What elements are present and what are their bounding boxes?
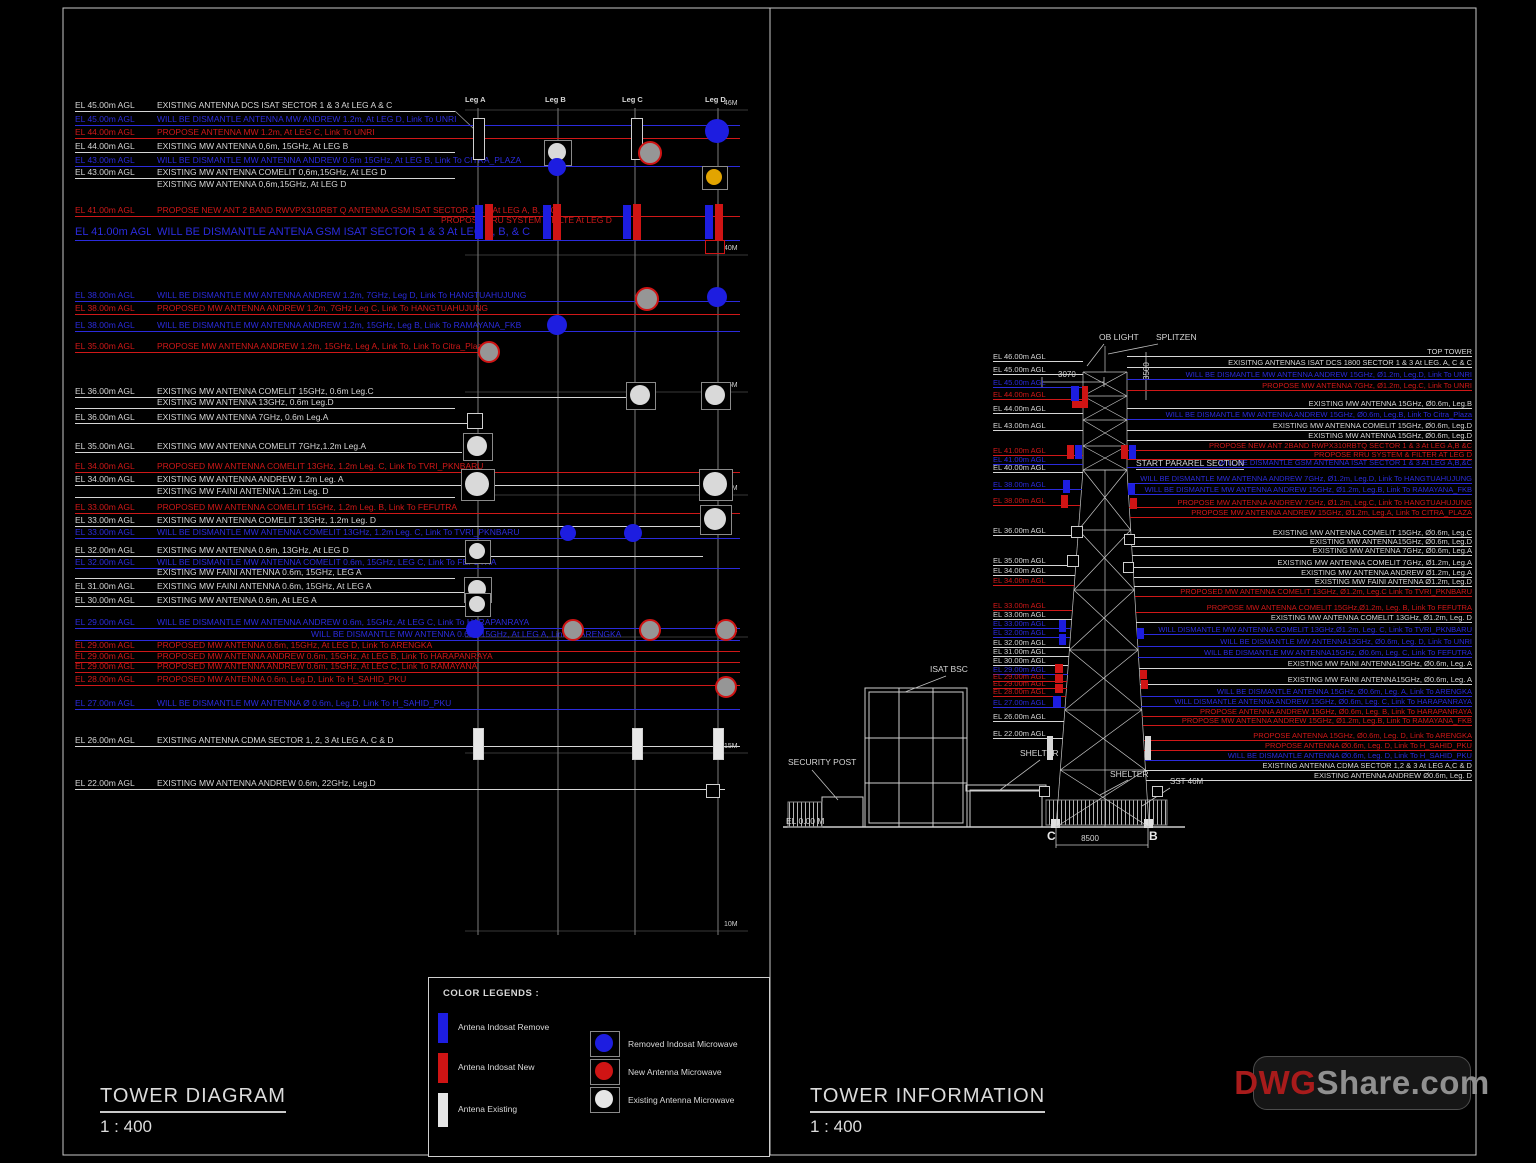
tower-elevation-label: EL 44.00m AGL <box>993 390 1083 400</box>
legend-swatch-new <box>438 1053 448 1083</box>
tower-info-annotation: WILL BE DISMANTLE ANTENNA Ø0.6m, Leg. D,… <box>1145 751 1472 761</box>
legend-label: Antena Indosat New <box>458 1062 535 1072</box>
legend-circle-new-mw <box>590 1059 620 1085</box>
tower-elevation-label: EL 40.00m AGL <box>993 463 1083 473</box>
security-post-label: SECURITY POST <box>788 757 856 767</box>
tower-elevation-label: EL 46.00m AGL <box>993 352 1083 362</box>
tower-antenna-symbol <box>1055 674 1063 683</box>
elevation-marker: 15M <box>724 743 738 750</box>
leg-header: Leg C <box>622 95 643 104</box>
tower-antenna-symbol <box>1055 664 1063 673</box>
diagram-annotation-row: EL 27.00m AGLWILL BE DISMANTLE MW ANTENN… <box>75 698 740 710</box>
existing-microwave-symbol <box>461 469 495 501</box>
tower-info-annotation: PROPOSE MW ANTENNA ANDREW 15GHz, Ø1.2m, … <box>1143 716 1472 726</box>
tower-info-annotation: EXISTING MW FAINI ANTENNA Ø1.2m, Leg.D <box>1134 577 1472 587</box>
splitzen-label: SPLITZEN <box>1156 332 1197 342</box>
tower-antenna-symbol <box>1130 498 1137 509</box>
leg-b-letter: B <box>1149 829 1158 843</box>
indosat-antenna-pair-symbol <box>622 204 642 240</box>
tower-antenna-symbol <box>1063 480 1070 493</box>
diagram-annotation-row: EL 29.00m AGLPROPOSED MW ANTENNA ANDREW … <box>75 661 740 673</box>
diagram-annotation-row: EL 43.00m AGLEXISTING MW ANTENNA COMELIT… <box>75 167 455 179</box>
legend-label: Antena Existing <box>458 1104 517 1114</box>
tower-info-annotation: EXISTING MW FAINI ANTENNA15GHz, Ø0.6m, L… <box>1140 675 1472 685</box>
right-panel-scale: 1 : 400 <box>810 1117 862 1137</box>
diagram-annotation-row: EL 22.00m AGLEXISTING MW ANTENNA ANDREW … <box>75 778 725 790</box>
tower-info-annotation: EXISTING MW ANTENNA COMELIT 7GHz, Ø1.2m,… <box>1133 558 1472 568</box>
new-microwave-symbol <box>562 619 584 641</box>
antenna-panel-symbol <box>467 413 483 429</box>
tower-antenna-symbol <box>1053 696 1061 707</box>
watermark-suffix: Share.com <box>1316 1064 1489 1102</box>
diagram-annotation-row: EL 35.00m AGLPROPOSE MW ANTENNA ANDREW 1… <box>75 341 478 353</box>
existing-microwave-symbol <box>465 540 491 564</box>
new-microwave-symbol <box>638 141 662 165</box>
diagram-annotation-row: EL 28.00m AGLPROPOSED MW ANTENNA 0.6m, L… <box>75 674 740 686</box>
sst-label: SST 46M <box>1170 777 1203 786</box>
diagram-annotation-row: EL 31.00m AGLEXISTING MW FAINI ANTENNA 0… <box>75 581 468 593</box>
tower-elevation-label: EL 44.00m AGL <box>993 404 1083 414</box>
legend-circle-removed-mw <box>590 1031 620 1057</box>
indosat-antenna-pair-symbol <box>704 204 724 240</box>
tower-info-annotation: PROPOSE MW ANTENNA ANDREW 7GHz, Ø1.2m, L… <box>1129 498 1472 508</box>
tower-antenna-symbol <box>1124 534 1135 545</box>
shelter-label: SHELTER <box>1020 748 1059 758</box>
diagram-annotation-row: EXISTING MW FAINI ANTENNA 0.6m, 15GHz, L… <box>75 567 455 579</box>
existing-microwave-symbol <box>700 505 732 535</box>
elevation-marker: 10M <box>724 921 738 928</box>
removed-microwave-symbol <box>624 524 642 542</box>
new-microwave-symbol <box>478 341 500 363</box>
tower-elevation-label: EL 35.00m AGL <box>993 556 1076 566</box>
cad-sheet: 3070 3500 8500 EL 45.00m AGLEXISTING ANT… <box>0 0 1536 1163</box>
left-panel-title: TOWER DIAGRAM <box>100 1085 286 1113</box>
diagram-annotation-row: EL 45.00m AGLEXISTING ANTENNA DCS ISAT S… <box>75 100 455 112</box>
diagram-annotation-row: EXISTING MW ANTENNA 0,6m,15GHz, At LEG D <box>75 179 455 190</box>
tower-info-annotation: EXISTING MW ANTENNA 7GHz, Ø0.6m, Leg.A <box>1132 546 1472 556</box>
diagram-annotation-row: EL 34.00m AGLEXISTING MW ANTENNA ANDREW … <box>75 474 700 486</box>
tower-info-annotation: EXISTING MW ANTENNA COMELIT 13GHz, Ø1.2m… <box>1136 613 1472 623</box>
legend-label: Removed Indosat Microwave <box>628 1039 738 1049</box>
new-microwave-symbol <box>715 619 737 641</box>
diagram-annotation-row: EL 36.00m AGLEXISTING MW ANTENNA 7GHz, 0… <box>75 412 468 424</box>
legend-swatch-remove <box>438 1013 448 1043</box>
legend-label: Existing Antenna Microwave <box>628 1095 734 1105</box>
tower-antenna-symbol <box>1145 736 1151 760</box>
antenna-panel-symbol <box>706 784 720 798</box>
legend-circle-existing-mw <box>590 1087 620 1113</box>
start-parapel-label: START PARAREL SECTION <box>1136 458 1244 470</box>
tower-antenna-symbol <box>1075 445 1082 459</box>
leader-lines <box>812 344 1170 806</box>
tower-info-annotation: PROPOSED MW ANTENNA COMELIT 13GHz, Ø1.2m… <box>1135 587 1472 597</box>
tower-info-annotation: EXISTING MW ANTENNA 15GHz, Ø0.6m, Leg.B <box>1127 399 1472 409</box>
indosat-antenna-pair-symbol <box>542 204 562 240</box>
elevation-marker: 40M <box>724 245 738 252</box>
tower-info-annotation: EXISTING MW FAINI ANTENNA15GHz, Ø0.6m, L… <box>1139 659 1472 669</box>
existing-microwave-symbol <box>626 382 656 410</box>
diagram-annotation-row: EXISTING MW ANTENNA 13GHz, 0.6m Leg.D <box>75 397 455 409</box>
tower-antenna-symbol <box>1061 495 1068 508</box>
tower-info-annotation: EXISITNG ANTENNAS ISAT DCS 1800 SECTOR 1… <box>1127 358 1472 368</box>
existing-microwave-symbol <box>701 382 731 410</box>
tower-info-annotation: WILL BE DISMANTLE ANTENNA 15GHz, Ø0.6m, … <box>1141 687 1472 697</box>
tower-info-annotation: WILL DISMANTLE ANTENNA ANDREW 15GHz, Ø0.… <box>1141 697 1472 707</box>
leg-c-letter: C <box>1047 829 1056 843</box>
tower-info-annotation: EXISTING MW ANTENNA COMELIT 15GHz, Ø0.6m… <box>1127 421 1472 431</box>
tower-antenna-symbol <box>1140 670 1147 679</box>
tower-elevation-label: EL 26.00m AGL <box>993 712 1064 722</box>
leg-header: Leg B <box>545 95 566 104</box>
legend-title: COLOR LEGENDS : <box>443 988 539 999</box>
removed-microwave-symbol <box>560 525 576 541</box>
diagram-annotation-row: EL 33.00m AGLPROPOSED MW ANTENNA COMELIT… <box>75 502 740 514</box>
tower-antenna-symbol <box>1137 628 1144 639</box>
tower-antenna-symbol <box>1059 620 1066 632</box>
tower-antenna-symbol <box>1071 526 1083 538</box>
color-legend: COLOR LEGENDS : Antena Indosat Remove An… <box>428 977 770 1157</box>
new-microwave-symbol <box>715 676 737 698</box>
elevation-marker: 46M <box>724 100 738 107</box>
existing-microwave-symbol <box>465 593 491 617</box>
indosat-antenna-pair-symbol <box>474 204 494 240</box>
existing-microwave-symbol <box>702 166 728 190</box>
tower-info-annotation: WILL DISMANTLE MW ANTENNA COMELIT 13GHz,… <box>1137 625 1472 635</box>
tower-antenna-symbol <box>1082 386 1088 401</box>
rru-frame-symbol <box>705 240 725 254</box>
antenna-panel-symbol <box>473 118 485 160</box>
tower-antenna-symbol <box>1129 445 1136 459</box>
tower-info-annotation: PROPOSE MW ANTENNA 7GHz, Ø1.2m, Leg.C, L… <box>1127 381 1472 391</box>
removed-microwave-symbol <box>707 287 727 307</box>
existing-microwave-symbol <box>699 469 733 501</box>
tower-elevation-label: EL 34.00m AGL <box>993 566 1075 576</box>
tower-info-annotation: PROPOSE ANTENNA 15GHz, Ø0.6m, Leg. D, Li… <box>1144 731 1472 741</box>
antenna-panel-symbol <box>713 728 724 760</box>
existing-microwave-symbol <box>463 433 493 461</box>
antenna-panel-symbol <box>632 728 643 760</box>
tower-elevation-label: EL 36.00m AGL <box>993 526 1078 536</box>
tower-elevation-label: EL 45.00m AGL <box>993 365 1083 375</box>
new-microwave-symbol <box>639 619 661 641</box>
tower-info-annotation: PROPOSE ANTENNA Ø0.6m, Leg. D, Link To H… <box>1144 741 1472 751</box>
diagram-annotation-row: EXISTING MW FAINI ANTENNA 1.2m Leg. D <box>75 486 455 498</box>
diagram-annotation-row: EL 38.00m AGLWILL BE DISMANTLE MW ANTENN… <box>75 320 740 332</box>
legend-label: Antena Indosat Remove <box>458 1022 549 1032</box>
tower-info-annotation: WILL BE DISMANTLE MW ANTENNA ANDREW 15GH… <box>1127 370 1472 380</box>
tower-info-annotation: TOP TOWER <box>1127 347 1472 357</box>
ground-elevation-label: EL 0.00 M <box>786 816 824 826</box>
tower-info-annotation: EXISTING ANTENNA CDMA SECTOR 1,2 & 3 At … <box>1145 761 1472 771</box>
left-panel-scale: 1 : 400 <box>100 1117 152 1137</box>
tower-info-annotation: PROPOSE MW ANTENNA ANDREW 15GHz, Ø1.2m, … <box>1130 508 1472 518</box>
tower-antenna-symbol <box>1123 562 1134 573</box>
diagram-annotation-row: EL 30.00m AGLEXISTING MW ANTENNA 0.6m, A… <box>75 595 468 607</box>
dwgshare-watermark: DWGShare.com <box>1253 1056 1471 1110</box>
antenna-panel-symbol <box>473 728 484 760</box>
legend-label: New Antenna Microwave <box>628 1067 722 1077</box>
shelter-label-2: SHELTER <box>1110 769 1149 779</box>
diagram-annotation-row: EL 44.00m AGLEXISTING MW ANTENNA 0,6m, 1… <box>75 141 455 153</box>
tower-antenna-symbol <box>1067 555 1079 567</box>
dim-base-width: 8500 <box>1081 834 1099 843</box>
tower-elevation-label: EL 34.00m AGL <box>993 576 1074 586</box>
diagram-annotation-row: EL 35.00m AGLEXISTING MW ANTENNA COMELIT… <box>75 441 462 453</box>
tower-antenna-symbol <box>1128 484 1135 495</box>
tower-info-annotation: PROPOSE MW ANTENNA COMELIT 15GHz,Ø1.2m, … <box>1136 603 1472 613</box>
right-panel-title: TOWER INFORMATION <box>810 1085 1045 1113</box>
tower-elevation-label: EL 43.00m AGL <box>993 421 1083 431</box>
removed-microwave-symbol <box>548 158 566 176</box>
tower-info-annotation: WILL BE DISMANTLE MW ANTENNA ANDREW 15GH… <box>1127 410 1472 420</box>
diagram-annotation-row: EL 34.00m AGLPROPOSED MW ANTENNA COMELIT… <box>75 461 740 473</box>
diagram-annotation-row: EL 32.00m AGLEXISTING MW ANTENNA 0.6m, 1… <box>75 545 703 557</box>
tower-antenna-symbol <box>1055 684 1063 693</box>
removed-microwave-symbol <box>547 315 567 335</box>
tower-antenna-symbol <box>1141 680 1148 689</box>
removed-microwave-symbol <box>705 119 729 143</box>
tower-antenna-symbol <box>1067 445 1074 459</box>
leg-header: Leg A <box>465 95 486 104</box>
tower-info-annotation: WILL BE DISMANTLE MW ANTENNA15GHz, Ø0.6m… <box>1138 648 1472 658</box>
tower-info-annotation: WILL BE DISMANTLE MW ANTENNA ANDREW 7GHz… <box>1128 474 1472 484</box>
tower-antenna-symbol <box>1059 634 1066 645</box>
tower-info-annotation: EXISTING MW ANTENNA 15GHz, Ø0.6m, Leg.D <box>1127 431 1472 441</box>
new-microwave-symbol <box>635 287 659 311</box>
tower-elevation-label: EL 45.00m AGL <box>993 378 1083 388</box>
diagram-annotation-row: EL 33.00m AGLEXISTING MW ANTENNA COMELIT… <box>75 515 703 527</box>
legend-swatch-existing <box>438 1093 448 1127</box>
watermark-prefix: DWG <box>1234 1064 1316 1102</box>
isat-bsc-label: ISAT BSC <box>930 664 968 674</box>
tower-antenna-symbol <box>1039 786 1050 797</box>
tower-antenna-symbol <box>1071 386 1079 401</box>
ob-light-label: OB LIGHT <box>1099 332 1139 342</box>
removed-microwave-symbol <box>466 620 484 638</box>
tower-antenna-symbol <box>1072 401 1088 408</box>
tower-antenna-symbol <box>1121 445 1128 459</box>
leg-header: Leg D <box>705 95 726 104</box>
tower-info-annotation: WILL BE DISMANTLE MW ANTENNA ANDREW 15GH… <box>1128 485 1472 495</box>
tower-antenna-symbol <box>1152 786 1163 797</box>
tower-info-annotation: WILL BE DISMANTLE MW ANTENNA13GHz, Ø0.6m… <box>1138 637 1472 647</box>
